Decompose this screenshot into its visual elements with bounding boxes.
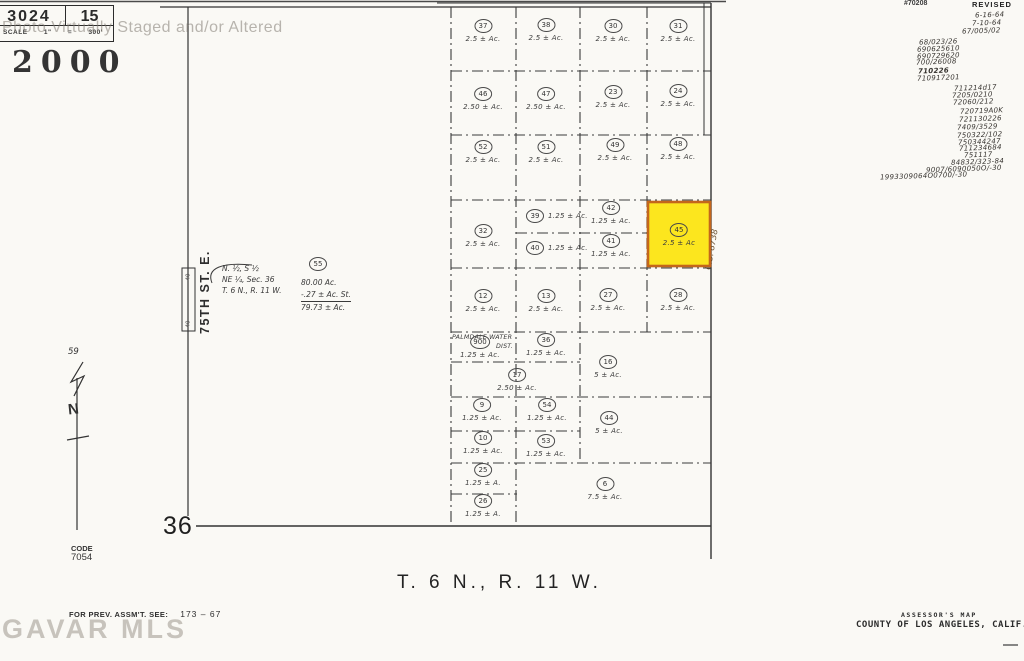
parcel-number: 48 — [669, 137, 687, 151]
parcel-acreage: 1.25 ± A. — [465, 510, 501, 518]
parcel-acreage: 2.50 ± Ac. — [497, 384, 537, 392]
parcel-number: 44 — [600, 411, 618, 425]
street-width-label: 40 — [186, 321, 192, 328]
parcel-acreage: 2.5 ± Ac. — [528, 34, 563, 42]
parcel-40: 401.25 ± Ac. — [526, 241, 588, 255]
parcel-acreage: 1.25 ± Ac. — [462, 414, 502, 422]
parcel-acreage: 2.50 ± Ac. — [526, 103, 566, 111]
parcel-45: 452.5 ± Ac — [663, 223, 696, 247]
parcel-31: 312.5 ± Ac. — [660, 19, 695, 43]
parcel-acreage: 2.50 ± Ac. — [463, 103, 503, 111]
parcel-acreage: 2.5 ± Ac — [663, 239, 696, 247]
parcel-13: 132.5 ± Ac. — [528, 289, 563, 313]
parcel-number: 49 — [606, 138, 624, 152]
parcel-acreage: 2.5 ± Ac. — [660, 153, 695, 161]
parcel-6: 67.5 ± Ac. — [587, 477, 622, 501]
parcel-acreage: 1.25 ± Ac. — [591, 217, 631, 225]
parcel-36: 361.25 ± Ac. — [526, 333, 566, 357]
parcel-acreage: 2.5 ± Ac. — [528, 156, 563, 164]
parcel-48: 482.5 ± Ac. — [660, 137, 695, 161]
parcel-number: 51 — [537, 140, 555, 154]
parcel-49: 492.5 ± Ac. — [597, 138, 632, 162]
parcel-acreage: 1.25 ± Ac. — [526, 450, 566, 458]
parcel-acreage: 1.25 ± A. — [465, 479, 501, 487]
parcel-acreage: 1.25 ± Ac. — [460, 351, 500, 359]
parcel-number: 13 — [537, 289, 555, 303]
parcel-41: 411.25 ± Ac. — [591, 234, 631, 258]
parcel-acreage: 2.5 ± Ac. — [660, 304, 695, 312]
parcel-acreage: 1.25 ± Ac. — [463, 447, 503, 455]
parcel-30: 302.5 ± Ac. — [595, 19, 630, 43]
parcel-26: 261.25 ± A. — [465, 494, 501, 518]
street-width-label: 40 — [186, 274, 192, 281]
parcel-number: 6 — [596, 477, 614, 491]
parcel-42: 421.25 ± Ac. — [591, 201, 631, 225]
parcel-acreage: 5 ± Ac. — [595, 427, 623, 435]
parcel-acreage: 2.5 ± Ac. — [528, 305, 563, 313]
parcel-acreage: 1.25 ± Ac. — [548, 212, 588, 220]
parcel-32: 322.5 ± Ac. — [465, 224, 500, 248]
parcel-38: 382.5 ± Ac. — [528, 18, 563, 42]
parcel-52: 522.5 ± Ac. — [465, 140, 500, 164]
parcel-10: 101.25 ± Ac. — [463, 431, 503, 455]
parcel-number: 12 — [474, 289, 492, 303]
parcel-acreage: 2.5 ± Ac. — [595, 35, 630, 43]
parcel-39: 391.25 ± Ac. — [526, 209, 588, 223]
parcel-acreage: 7.5 ± Ac. — [587, 493, 622, 501]
parcel-46: 462.50 ± Ac. — [463, 87, 503, 111]
parcel-number: 25 — [474, 463, 492, 477]
parcel-number: 55 — [309, 257, 327, 271]
parcel-number: 30 — [604, 19, 622, 33]
parcel-number: 45 — [670, 223, 688, 237]
parcel-number: 900 — [470, 335, 489, 349]
parcel-number: 47 — [537, 87, 555, 101]
parcel-layer: 372.5 ± Ac.382.5 ± Ac.302.5 ± Ac.312.5 ±… — [0, 0, 1024, 661]
parcel-28: 282.5 ± Ac. — [660, 288, 695, 312]
parcel-number: 39 — [526, 209, 544, 223]
parcel-44: 445 ± Ac. — [595, 411, 623, 435]
parcel-acreage: 2.5 ± Ac. — [465, 35, 500, 43]
parcel-12: 122.5 ± Ac. — [465, 289, 500, 313]
parcel-number: 31 — [669, 19, 687, 33]
photo-staged-watermark: Photo Virtually Staged and/or Altered — [2, 20, 283, 36]
parcel-number: 28 — [669, 288, 687, 302]
parcel-acreage: 1.25 ± Ac. — [527, 414, 567, 422]
parcel-acreage: 2.5 ± Ac. — [465, 156, 500, 164]
parcel-55: 55 — [309, 257, 327, 271]
parcel-51: 512.5 ± Ac. — [528, 140, 563, 164]
parcel-acreage: 2.5 ± Ac. — [660, 100, 695, 108]
parcel-number: 23 — [604, 85, 622, 99]
parcel-number: 9 — [473, 398, 491, 412]
parcel-54: 541.25 ± Ac. — [527, 398, 567, 422]
parcel-number: 40 — [526, 241, 544, 255]
parcel-number: 53 — [537, 434, 555, 448]
parcel-acreage: 5 ± Ac. — [594, 371, 622, 379]
parcel-37: 372.5 ± Ac. — [465, 19, 500, 43]
parcel-25: 251.25 ± A. — [465, 463, 501, 487]
parcel-27: 272.5 ± Ac. — [590, 288, 625, 312]
parcel-acreage: 2.5 ± Ac. — [595, 101, 630, 109]
parcel-24: 242.5 ± Ac. — [660, 84, 695, 108]
parcel-16: 165 ± Ac. — [594, 355, 622, 379]
parcel-number: 36 — [537, 333, 555, 347]
parcel-acreage: 1.25 ± Ac. — [548, 244, 588, 252]
parcel-23: 232.5 ± Ac. — [595, 85, 630, 109]
assessor-map-page: 3024 15 SCALE 1" = 300' 2000 Photo Virtu… — [0, 0, 1024, 661]
parcel-acreage: 2.5 ± Ac. — [465, 305, 500, 313]
parcel-number: 52 — [474, 140, 492, 154]
parcel-acreage: 1.25 ± Ac. — [526, 349, 566, 357]
parcel-number: 41 — [602, 234, 620, 248]
parcel-number: 27 — [599, 288, 617, 302]
parcel-53: 531.25 ± Ac. — [526, 434, 566, 458]
parcel-number: 10 — [474, 431, 492, 445]
parcel-acreage: 2.5 ± Ac. — [465, 240, 500, 248]
parcel-9: 91.25 ± Ac. — [462, 398, 502, 422]
parcel-acreage: 1.25 ± Ac. — [591, 250, 631, 258]
parcel-acreage: 2.5 ± Ac. — [660, 35, 695, 43]
parcel-47: 472.50 ± Ac. — [526, 87, 566, 111]
parcel-acreage: 2.5 ± Ac. — [590, 304, 625, 312]
parcel-number: 16 — [599, 355, 617, 369]
parcel-number: 37 — [474, 19, 492, 33]
parcel-acreage: 2.5 ± Ac. — [597, 154, 632, 162]
parcel-number: 24 — [669, 84, 687, 98]
parcel-number: 42 — [602, 201, 620, 215]
parcel-number: 46 — [474, 87, 492, 101]
parcel-number: 26 — [474, 494, 492, 508]
parcel-900: 9001.25 ± Ac. — [460, 335, 500, 359]
parcel-number: 32 — [474, 224, 492, 238]
parcel-number: 17 — [508, 368, 526, 382]
parcel-number: 54 — [538, 398, 556, 412]
parcel-number: 38 — [537, 18, 555, 32]
mls-watermark: GAVAR MLS — [2, 616, 187, 643]
parcel-17: 172.50 ± Ac. — [497, 368, 537, 392]
